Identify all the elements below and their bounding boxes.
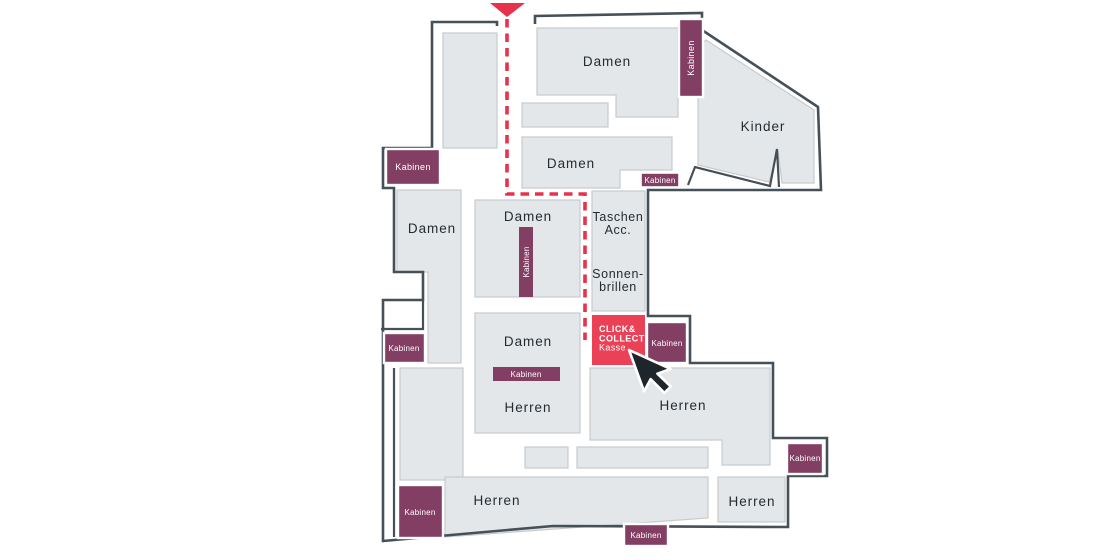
- kabinen-center-strip: Kabinen: [519, 227, 533, 297]
- section-entry-left: [443, 33, 497, 148]
- kabinen-bottom-left-label: Kabinen: [404, 508, 435, 517]
- kabinen-left-mid-label: Kabinen: [388, 344, 419, 353]
- label-damen-center2: Damen: [504, 334, 552, 349]
- kabinen-left-mid: Kabinen: [384, 333, 425, 363]
- section-kinder: [698, 40, 814, 183]
- kabinen-right-of-kasse: Kabinen: [647, 322, 687, 363]
- store-floorplan: Damen Damen Kinder Damen Damen Taschen A…: [0, 0, 1120, 560]
- label-sonnen: Sonnen-: [592, 267, 644, 281]
- label-damen-top: Damen: [583, 54, 631, 69]
- label-brillen: brillen: [599, 280, 637, 294]
- label-herren-right: Herren: [660, 398, 707, 413]
- kabinen-top-right: Kabinen: [679, 19, 703, 97]
- kabinen-top-left-label: Kabinen: [395, 162, 431, 172]
- section-left-lower: [400, 368, 463, 480]
- kabinen-center-badge: Kabinen: [493, 367, 560, 381]
- section-small-top: [522, 103, 608, 127]
- label-herren-center: Herren: [505, 400, 552, 415]
- kabinen-bottom-center-label: Kabinen: [630, 531, 661, 540]
- kabinen-mid-badge-label: Kabinen: [644, 176, 675, 185]
- label-damen-mid: Damen: [547, 156, 595, 171]
- label-acc: Acc.: [605, 223, 632, 237]
- section-strip-wide: [577, 447, 708, 468]
- kabinen-mid-badge: Kabinen: [641, 173, 679, 187]
- wall-elevator-notch: [381, 300, 423, 329]
- label-herren-bottom-right: Herren: [729, 494, 776, 509]
- kabinen-right-of-kasse-label: Kabinen: [651, 339, 682, 348]
- kabinen-center-strip-label: Kabinen: [522, 246, 531, 277]
- kabinen-center-badge-label: Kabinen: [510, 370, 541, 379]
- label-herren-bottom: Herren: [474, 493, 521, 508]
- floorplan-svg: Damen Damen Kinder Damen Damen Taschen A…: [0, 0, 1120, 560]
- kabinen-top-left: Kabinen: [386, 149, 440, 185]
- section-strip-small: [525, 447, 568, 468]
- kabinen-top-right-label: Kabinen: [686, 40, 696, 76]
- kabinen-bottom-left: Kabinen: [398, 485, 443, 538]
- entrance-arrow-icon: [490, 3, 525, 17]
- label-damen-left: Damen: [408, 221, 456, 236]
- kabinen-right-edge-label: Kabinen: [789, 454, 820, 463]
- kabinen-bottom-center: Kabinen: [624, 524, 668, 546]
- label-damen-center: Damen: [504, 209, 552, 224]
- click-collect-line1: CLICK&: [599, 324, 636, 334]
- kabinen-right-edge: Kabinen: [787, 443, 823, 474]
- click-collect-line3: Kasse: [599, 343, 626, 353]
- label-taschen: Taschen: [593, 210, 644, 224]
- label-kinder: Kinder: [741, 119, 786, 134]
